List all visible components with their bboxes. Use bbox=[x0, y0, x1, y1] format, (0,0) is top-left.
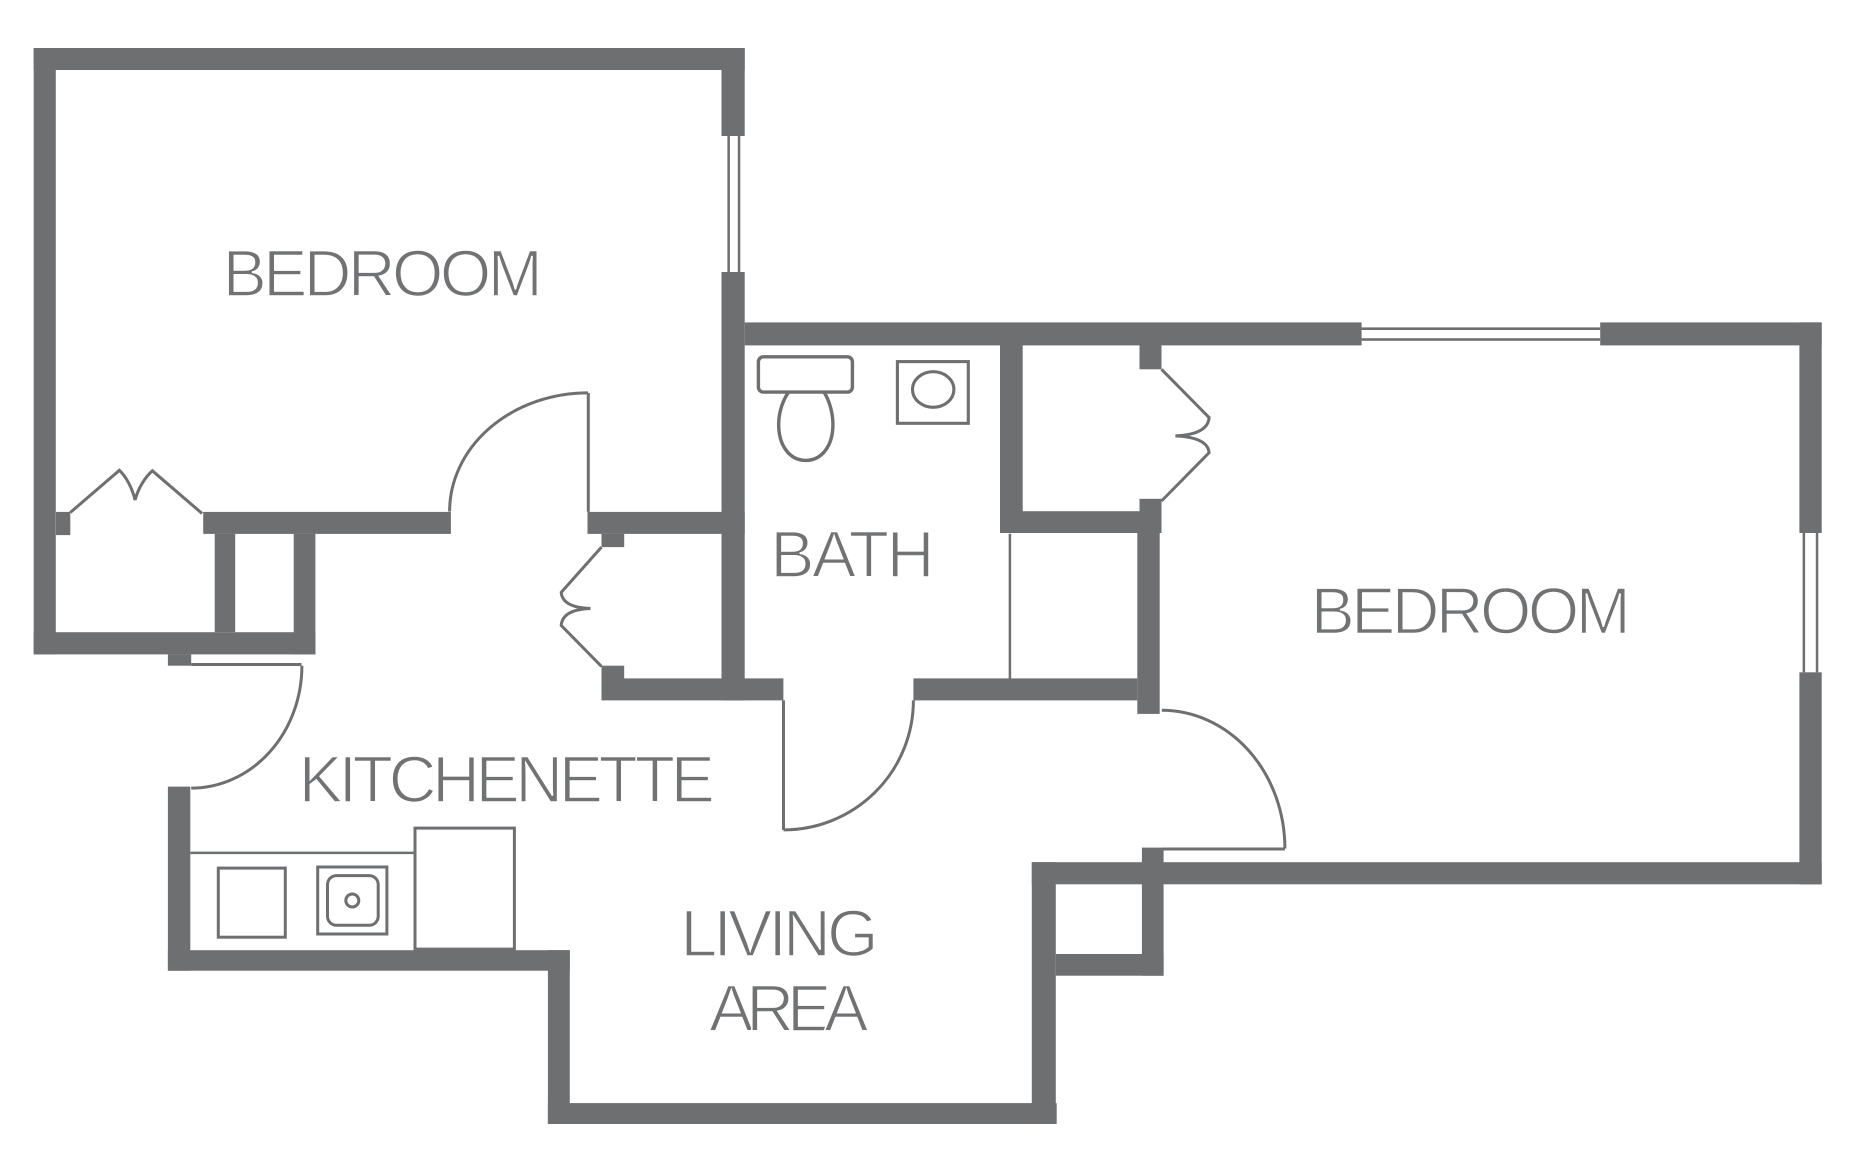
svg-text:KITCHENETTE: KITCHENETTE bbox=[299, 742, 715, 816]
svg-text:BEDROOM: BEDROOM bbox=[223, 236, 543, 310]
svg-text:BATH: BATH bbox=[770, 517, 934, 591]
svg-text:AREA: AREA bbox=[709, 971, 868, 1045]
svg-text:LIVING: LIVING bbox=[681, 896, 879, 970]
svg-text:BEDROOM: BEDROOM bbox=[1311, 574, 1631, 648]
